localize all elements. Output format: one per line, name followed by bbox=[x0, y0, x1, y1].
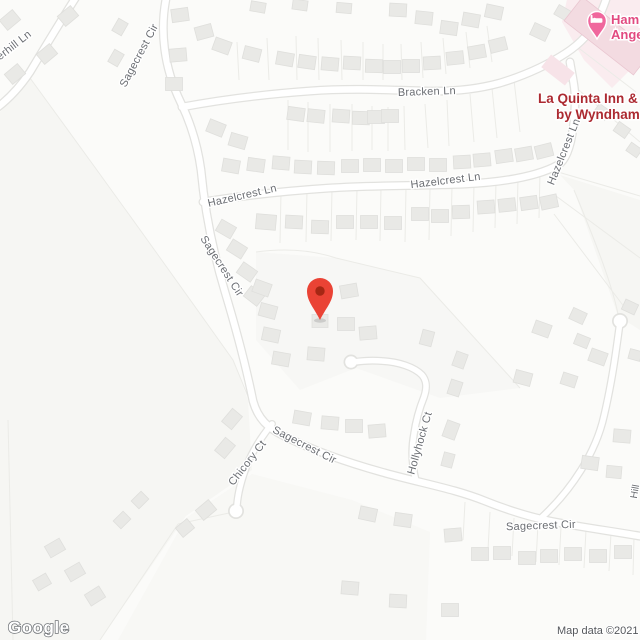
map-canvas[interactable]: erhill Ln Sagecrest Cir Bracken Ln Hazel… bbox=[0, 0, 640, 640]
street-label-bracken: Bracken Ln bbox=[398, 85, 457, 99]
poi-la-quinta-line1: La Quinta Inn & S bbox=[538, 91, 640, 106]
map-attribution: Map data ©2021 bbox=[557, 625, 639, 637]
marker-inner-dot bbox=[315, 286, 324, 295]
map-viewport: erhill Ln Sagecrest Cir Bracken Ln Hazel… bbox=[0, 0, 640, 640]
poi-la-quinta-line2: by Wyndham S bbox=[556, 107, 640, 122]
poi-hampton-line2: Ange bbox=[611, 27, 640, 42]
poi-hampton-line1: Hamp bbox=[611, 12, 640, 27]
street-label-edge-partial: Hill bbox=[629, 484, 640, 500]
google-logo: Google bbox=[8, 618, 70, 637]
street-label-sagecrest-se: Sagecrest Cir bbox=[506, 519, 576, 533]
poi-hampton[interactable]: Hamp Ange bbox=[588, 11, 640, 42]
